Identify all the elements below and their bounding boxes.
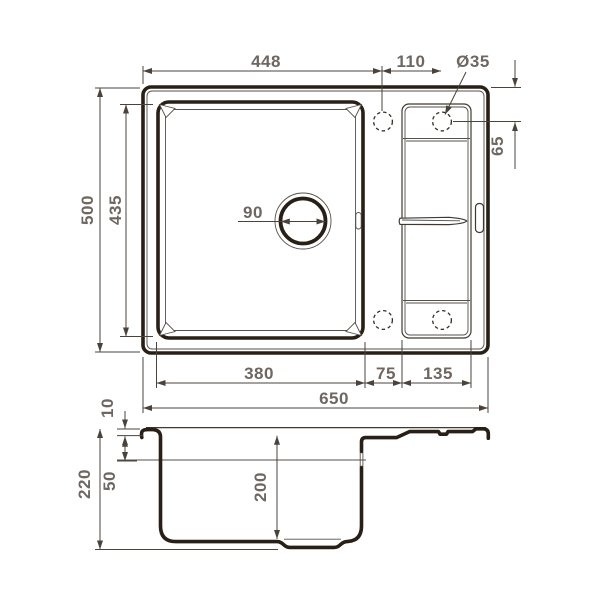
dim-650-label: 650 [319, 389, 349, 408]
dim-220-label: 220 [75, 469, 94, 499]
rim-overflow-slot [476, 204, 484, 233]
side-profile-right-wing [362, 429, 489, 452]
sink-technical-drawing: 448 110 Ø35 65 500 435 90 [0, 0, 600, 600]
dim-10-label: 10 [98, 398, 117, 418]
dim-110-label: 110 [397, 52, 426, 71]
dim-65-label: 65 [488, 136, 507, 156]
dim-435-label: 435 [106, 195, 125, 225]
dim-135-label: 135 [423, 364, 453, 383]
dim-75-label: 75 [376, 364, 396, 383]
side-view [117, 428, 488, 548]
bowl-overflow-notch [356, 213, 361, 230]
dim-50-label: 50 [100, 471, 119, 491]
dim-500-label: 500 [78, 195, 97, 225]
dim-90-label: 90 [243, 203, 263, 222]
dim-448-label: 448 [251, 52, 281, 71]
technical-drawing-canvas: 448 110 Ø35 65 500 435 90 [0, 0, 600, 600]
dim-380-label: 380 [244, 364, 274, 383]
dim-tap-diameter-label: Ø35 [456, 52, 490, 71]
dim-200-label: 200 [251, 472, 270, 502]
top-view [143, 87, 488, 353]
